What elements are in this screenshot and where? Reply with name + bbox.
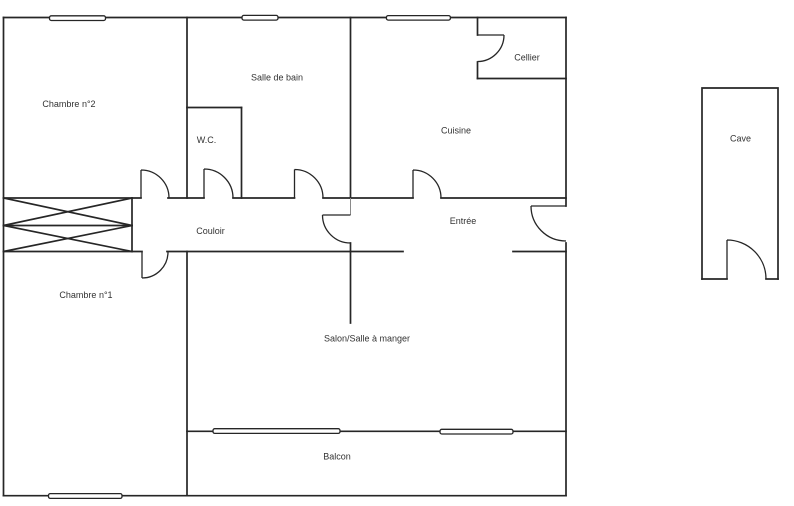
svg-text:Couloir: Couloir [196,226,225,236]
svg-text:W.C.: W.C. [197,135,217,145]
svg-text:Salon/Salle à manger: Salon/Salle à manger [324,333,410,343]
svg-text:Cuisine: Cuisine [441,125,471,135]
svg-text:Balcon: Balcon [323,452,351,462]
svg-text:Cave: Cave [730,133,751,143]
svg-text:Entrée: Entrée [450,216,477,226]
svg-text:Cellier: Cellier [514,53,540,63]
svg-text:Chambre n°1: Chambre n°1 [59,290,112,300]
svg-text:Chambre n°2: Chambre n°2 [42,99,95,109]
svg-text:Salle de bain: Salle de bain [251,72,303,82]
